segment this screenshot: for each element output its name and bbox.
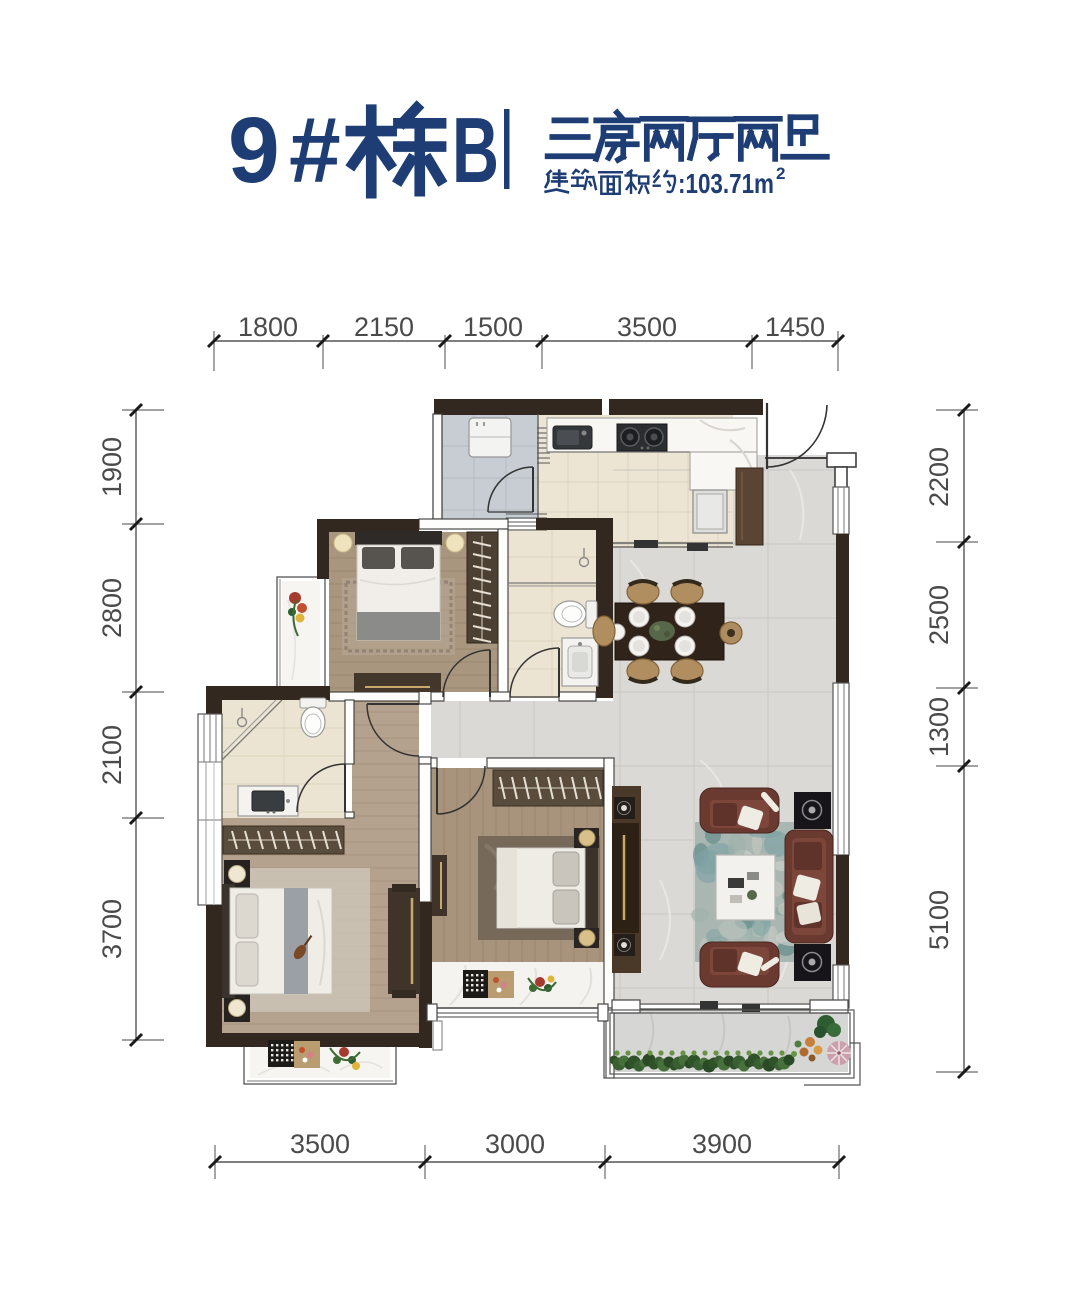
svg-text:1800: 1800 [238,312,298,342]
svg-text:2: 2 [776,164,785,183]
svg-text:2200: 2200 [924,447,954,507]
svg-text:3000: 3000 [485,1129,545,1159]
svg-text:2150: 2150 [354,312,414,342]
svg-text::103.71m: :103.71m [678,168,774,199]
svg-text:2100: 2100 [97,725,127,785]
svg-text:3500: 3500 [290,1129,350,1159]
svg-text:B: B [452,98,499,202]
svg-text:1450: 1450 [765,312,825,342]
svg-text:3500: 3500 [617,312,677,342]
svg-text:9: 9 [228,98,280,202]
svg-text:3900: 3900 [692,1129,752,1159]
svg-text:#: # [289,98,341,202]
svg-text:2800: 2800 [97,578,127,638]
svg-text:1300: 1300 [924,697,954,757]
svg-text:5100: 5100 [924,890,954,950]
svg-text:1500: 1500 [463,312,523,342]
svg-text:3700: 3700 [97,899,127,959]
svg-text:1900: 1900 [97,437,127,497]
svg-text:2500: 2500 [924,585,954,645]
